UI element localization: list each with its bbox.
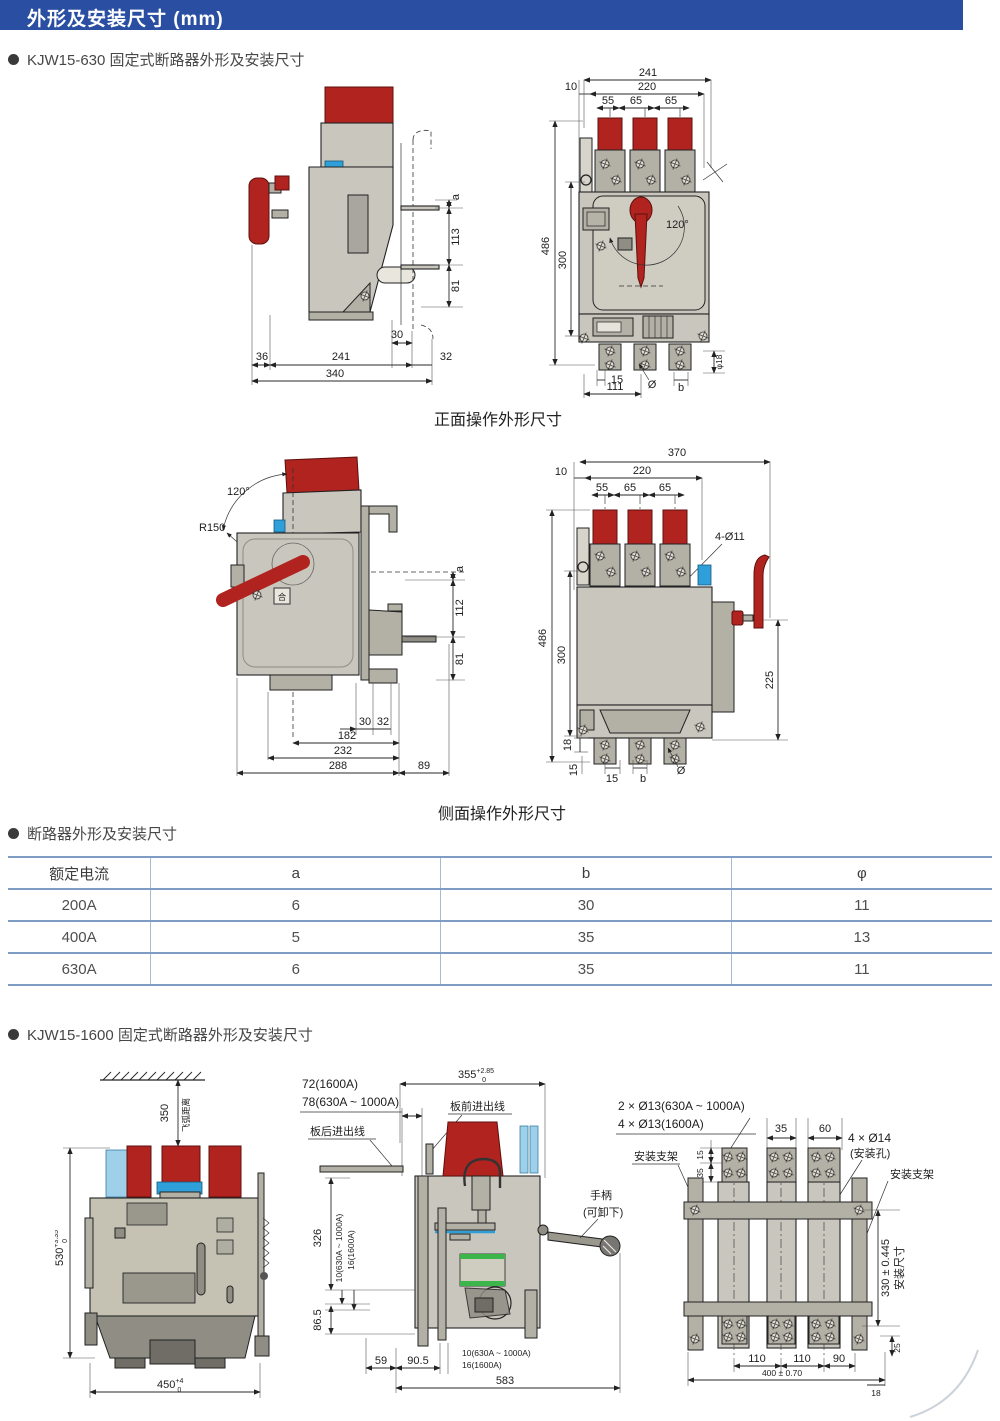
svg-text:113: 113 [450,228,462,246]
svg-text:飞弧距离: 飞弧距离 [181,1098,191,1132]
svg-text:55: 55 [602,95,614,107]
svg-text:b: b [678,382,684,394]
svg-text:65: 65 [665,95,677,107]
svg-text:Ø: Ø [648,379,657,391]
svg-text:安装尺寸: 安装尺寸 [892,1246,906,1290]
table-row: 630A 6 35 11 [8,953,992,985]
breaker-side-body [249,87,439,339]
svg-text:110: 110 [748,1353,766,1365]
cell: 6 [151,889,441,921]
svg-text:合: 合 [278,592,287,602]
svg-text:350: 350 [159,1104,171,1122]
svg-text:78(630A ~ 1000A): 78(630A ~ 1000A) [302,1095,399,1109]
top-labels: 72(1600A) 78(630A ~ 1000A) 板前进出线 355+2.8… [300,1068,545,1178]
cell: 35 [441,953,731,985]
dimension-table: 额定电流 a b φ 200A 6 30 11 400A 5 35 13 [8,856,992,986]
cell: 200A [8,889,151,921]
svg-text:4 × Ø14: 4 × Ø14 [848,1131,891,1145]
bracket-structure [684,1148,872,1358]
section-header-bar: 外形及安装尺寸 (mm) [0,0,963,30]
cell: 5 [151,921,441,953]
svg-text:60: 60 [819,1123,831,1135]
cell: 6 [151,953,441,985]
col-rated-current: 额定电流 [8,857,151,889]
cell: 11 [731,889,992,921]
svg-text:a: a [450,193,462,200]
svg-text:4 × Ø13(1600A): 4 × Ø13(1600A) [618,1117,704,1131]
svg-text:112: 112 [454,599,466,617]
bullet-kjw15-630: KJW15-630 固定式断路器外形及安装尺寸 [8,49,305,70]
svg-text:板前进出线: 板前进出线 [450,1099,505,1113]
col-phi: φ [731,857,992,889]
col-a: a [151,857,441,889]
svg-text:370: 370 [668,447,686,459]
svg-text:(安装孔): (安装孔) [850,1146,890,1160]
svg-text:安装支架: 安装支架 [890,1167,934,1181]
svg-text:326: 326 [312,1229,324,1247]
drawing-630-side-view: a 113 81 30 36 241 32 340 [225,75,475,395]
svg-text:65: 65 [630,95,642,107]
svg-text:板后进出线: 板后进出线 [310,1124,365,1138]
svg-text:288: 288 [329,760,347,772]
svg-text:583: 583 [496,1375,514,1387]
svg-text:32: 32 [377,716,389,728]
svg-text:90.5: 90.5 [407,1355,428,1367]
svg-text:400 ± 0.70: 400 ± 0.70 [762,1368,802,1378]
svg-text:φ18: φ18 [714,354,724,369]
table-header-row: 额定电流 a b φ [8,857,992,889]
svg-text:300: 300 [556,646,568,664]
svg-text:241: 241 [332,351,350,363]
svg-text:65: 65 [659,482,671,494]
cell: 35 [441,921,731,953]
svg-text:R150: R150 [199,522,225,534]
drawing-630-front-view: 241 220 10 55 65 65 [535,68,835,403]
svg-text:16(1600A): 16(1600A) [346,1230,356,1270]
svg-text:486: 486 [537,629,549,647]
cell: 11 [731,953,992,985]
bullet-icon [8,1029,19,1040]
breaker-front-body [577,510,769,765]
bullet-icon [8,54,19,65]
svg-text:10: 10 [555,466,567,478]
svg-text:10(630A ~ 1000A): 10(630A ~ 1000A) [462,1348,531,1358]
svg-text:4-Ø11: 4-Ø11 [715,531,745,543]
svg-text:330 ± 0.445: 330 ± 0.445 [880,1239,892,1297]
drawing-630-side-operation-view: 120° R150 合 [175,440,475,805]
svg-text:18: 18 [562,739,574,751]
datasheet-page: 外形及安装尺寸 (mm) KJW15-630 固定式断路器外形及安装尺寸 [0,0,1000,1421]
bullet-icon [8,828,19,839]
bullet-breaker-dimensions-label: 断路器外形及安装尺寸 [27,823,177,844]
svg-text:241: 241 [639,68,657,79]
svg-text:81: 81 [450,280,462,292]
svg-text:55: 55 [596,482,608,494]
svg-text:30: 30 [359,716,371,728]
svg-text:35: 35 [775,1123,787,1135]
drawing-1600-middle-view: 72(1600A) 78(630A ~ 1000A) 板前进出线 355+2.8… [300,1058,645,1420]
svg-text:355+2.850: 355+2.850 [458,1068,494,1084]
svg-text:2 × Ø13(630A ~ 1000A): 2 × Ø13(630A ~ 1000A) [618,1099,745,1113]
svg-text:225: 225 [764,671,776,689]
svg-text:65: 65 [624,482,636,494]
svg-text:220: 220 [638,81,656,93]
col-b: b [441,857,731,889]
table-row: 200A 6 30 11 [8,889,992,921]
bullet-kjw15-1600-label: KJW15-1600 固定式断路器外形及安装尺寸 [27,1024,313,1045]
svg-text:15: 15 [606,773,618,785]
svg-text:220: 220 [633,465,651,477]
svg-text:86.5: 86.5 [312,1309,324,1330]
front-view-caption: 正面操作外形尺寸 [378,406,618,430]
svg-text:a: a [454,565,466,572]
svg-text:120°: 120° [666,219,689,231]
svg-text:340: 340 [326,368,344,380]
cell: 30 [441,889,731,921]
svg-text:232: 232 [334,745,352,757]
table-row: 400A 5 35 13 [8,921,992,953]
breaker-front-body: 120° [579,118,728,371]
svg-text:120°: 120° [227,486,250,498]
drawing-1600-left-view: 350 飞弧距离 [55,1058,305,1420]
cell: 400A [8,921,151,953]
svg-text:111: 111 [607,381,624,393]
page-title: 外形及安装尺寸 (mm) [27,4,224,31]
svg-text:10(630A ~ 1000A): 10(630A ~ 1000A) [334,1213,344,1282]
cell: 13 [731,921,992,953]
ceiling-hatch: 350 飞弧距离 [100,1072,205,1146]
svg-text:81: 81 [454,653,466,665]
bullet-kjw15-630-label: KJW15-630 固定式断路器外形及安装尺寸 [27,49,305,70]
svg-text:89: 89 [418,760,430,772]
svg-text:16(1600A): 16(1600A) [462,1360,502,1370]
svg-text:530+3.350: 530+3.350 [55,1230,69,1266]
side-view-caption: 侧面操作外形尺寸 [382,800,622,824]
svg-text:b: b [640,773,646,785]
breaker-side-body: 120° R150 合 [199,457,436,740]
svg-text:182: 182 [338,730,356,742]
svg-text:59: 59 [375,1355,387,1367]
svg-text:36: 36 [256,351,268,363]
svg-text:30: 30 [391,329,403,341]
svg-text:90: 90 [833,1353,845,1365]
svg-text:安装支架: 安装支架 [634,1149,678,1163]
svg-text:110: 110 [793,1353,811,1365]
svg-text:72(1600A): 72(1600A) [302,1077,358,1091]
svg-text:35: 35 [695,1168,705,1178]
bullet-breaker-dimensions: 断路器外形及安装尺寸 [8,823,177,844]
svg-text:10: 10 [565,81,577,93]
page-curl-decoration [880,1300,1000,1421]
svg-text:15: 15 [695,1150,705,1160]
svg-text:486: 486 [540,237,552,255]
breaker-1600-body [85,1146,269,1368]
svg-text:15: 15 [568,764,580,776]
svg-text:300: 300 [557,251,569,269]
bullet-kjw15-1600: KJW15-1600 固定式断路器外形及安装尺寸 [8,1024,313,1045]
breaker-1600-side-body [320,1122,620,1346]
drawing-630-front-view-2: 370 10 220 55 65 65 4-Ø11 [530,440,875,805]
svg-text:32: 32 [440,351,452,363]
cell: 630A [8,953,151,985]
